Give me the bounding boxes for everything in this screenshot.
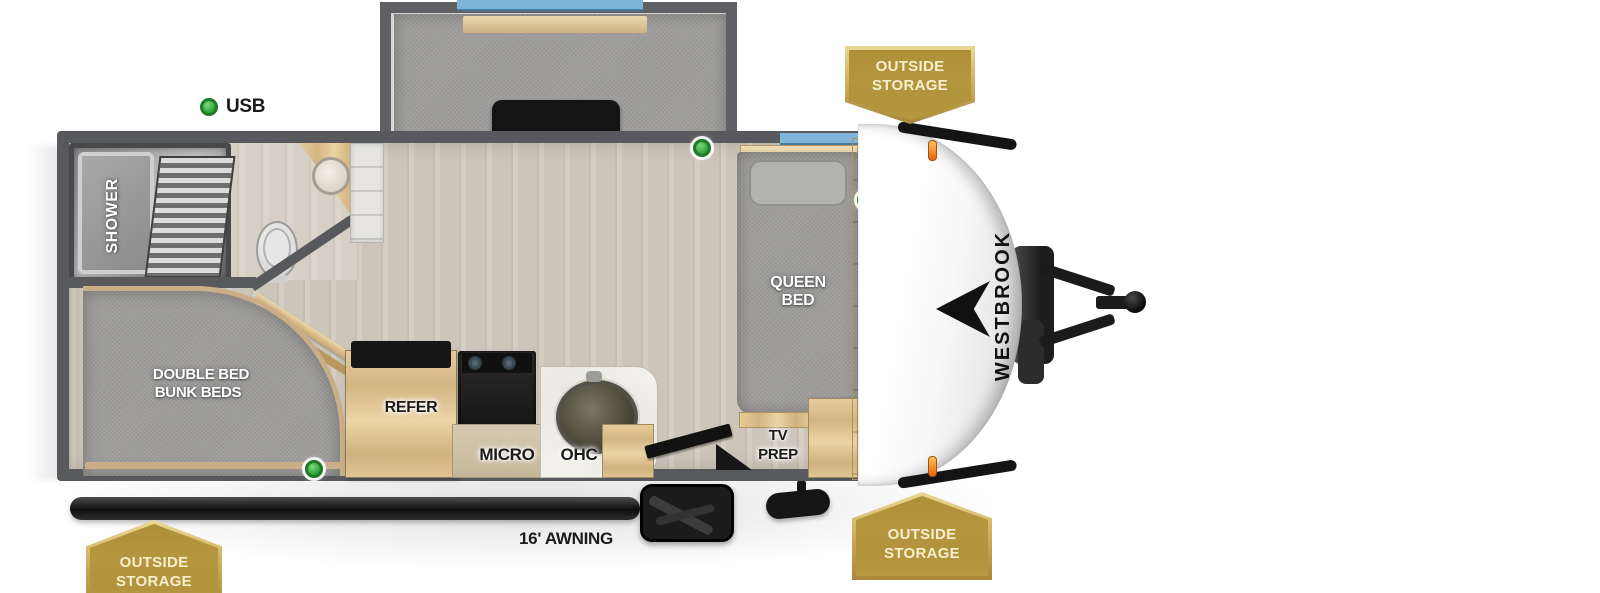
tv-prep-label-line1: TV bbox=[758, 428, 798, 443]
wardrobe-cabinet bbox=[350, 143, 384, 243]
bunk-label-line2: BUNK BEDS bbox=[148, 385, 248, 400]
ohc-kitchen-label: OHC bbox=[536, 446, 622, 463]
badge-bl-line2: STORAGE bbox=[116, 573, 192, 592]
badge-br-line1: OUTSIDE bbox=[888, 526, 957, 545]
badge-top-line1: OUTSIDE bbox=[876, 58, 945, 77]
outside-storage-badge-top-inner: OUTSIDE STORAGE bbox=[849, 50, 971, 120]
faucet-icon bbox=[586, 371, 602, 382]
marker-light-bottom-icon bbox=[928, 456, 937, 477]
shower-label-wrap: SHOWER bbox=[103, 151, 123, 281]
tongue-jack bbox=[1018, 320, 1044, 384]
outside-storage-badge-top: OUTSIDE STORAGE bbox=[845, 46, 975, 124]
shower-door-louvers bbox=[145, 156, 236, 278]
brand-name-wrap: WESTBROOK bbox=[992, 231, 1014, 381]
badge-bl-line1: OUTSIDE bbox=[120, 554, 189, 573]
refer-label: REFER bbox=[368, 400, 454, 416]
refrigerator-top bbox=[351, 341, 451, 368]
usb-legend-icon bbox=[200, 98, 218, 116]
awning-tube bbox=[70, 497, 640, 520]
bed-foot-step bbox=[739, 412, 809, 428]
slide-window bbox=[457, 0, 643, 11]
bunk-label-line1: DOUBLE BED bbox=[151, 367, 251, 382]
queen-label-line1: QUEEN bbox=[758, 275, 838, 291]
brand-name: WESTBROOK bbox=[992, 231, 1015, 381]
badge-top-line2: STORAGE bbox=[872, 77, 948, 96]
awning-label: 16' AWNING bbox=[505, 530, 627, 547]
usb-location-icon-bunk bbox=[305, 460, 323, 478]
shower-label: SHOWER bbox=[105, 179, 121, 254]
rear-shadow bbox=[28, 145, 60, 480]
burner-right-icon bbox=[502, 356, 516, 370]
usb-location-icon-slide bbox=[693, 139, 711, 157]
bed-pillow bbox=[749, 160, 847, 206]
dinette-shelf bbox=[463, 16, 647, 33]
badge-br-line2: STORAGE bbox=[884, 545, 960, 564]
tv-prep-label-line2: PREP bbox=[750, 447, 806, 462]
tv-prep-cabinet bbox=[808, 398, 858, 478]
marker-light-top-icon bbox=[928, 140, 937, 161]
bath-sink-bowl bbox=[312, 157, 350, 195]
stabilizer-jack-pin bbox=[797, 481, 806, 495]
floorplan-canvas: DINETTE SHOWER DOUBLE BED BUNK BEDS REFE… bbox=[0, 0, 1600, 593]
queen-label-line2: BED bbox=[758, 293, 838, 309]
usb-legend-label: USB bbox=[226, 97, 280, 116]
hitch-coupler bbox=[1124, 291, 1146, 313]
burner-left-icon bbox=[468, 356, 482, 370]
